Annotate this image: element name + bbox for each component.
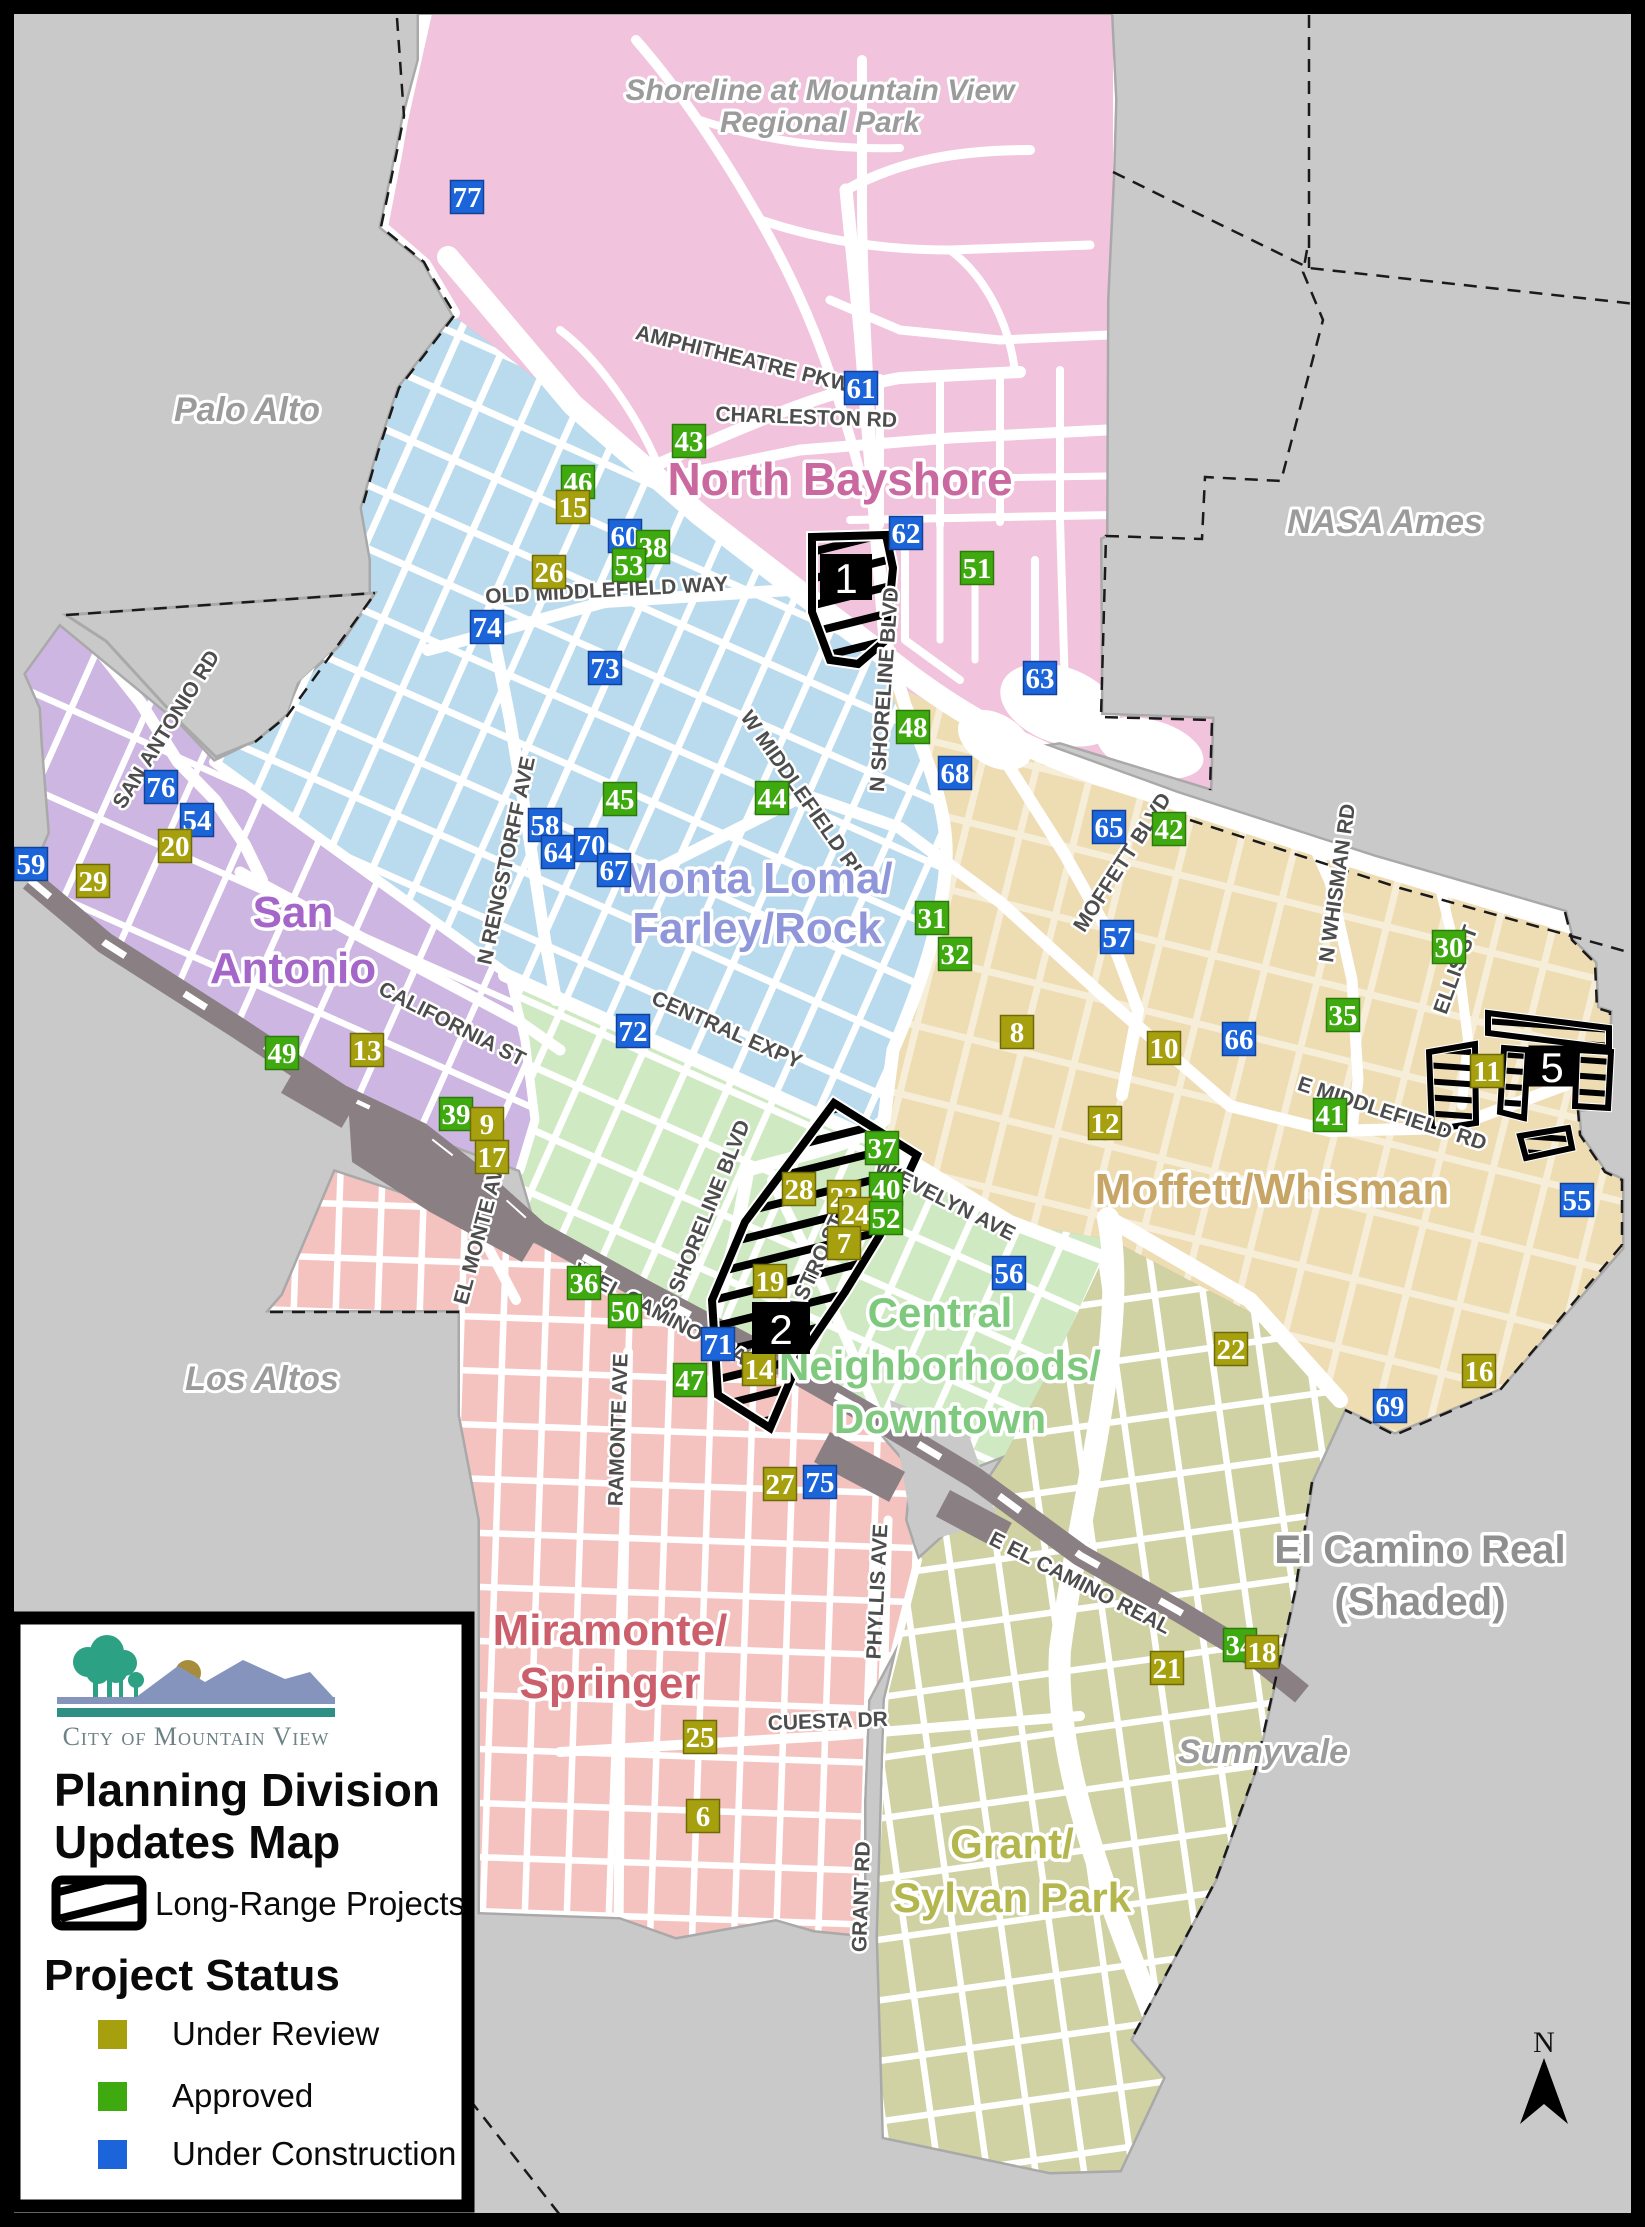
svg-text:Planning Division: Planning Division (54, 1764, 440, 1816)
svg-text:72: 72 (619, 1016, 648, 1048)
svg-text:6: 6 (696, 1801, 711, 1833)
svg-text:Approved: Approved (172, 2077, 313, 2114)
svg-text:9: 9 (480, 1109, 495, 1141)
svg-text:N: N (1533, 2026, 1555, 2059)
svg-text:Regional Park: Regional Park (720, 106, 921, 139)
svg-text:Farley/Rock: Farley/Rock (632, 904, 882, 953)
svg-text:5: 5 (1540, 1044, 1563, 1091)
svg-text:Springer: Springer (520, 1659, 701, 1708)
svg-text:57: 57 (1103, 922, 1132, 954)
svg-text:76: 76 (147, 772, 176, 804)
svg-text:49: 49 (268, 1038, 297, 1070)
svg-text:37: 37 (868, 1133, 897, 1165)
svg-text:Moffett/Whisman: Moffett/Whisman (1095, 1165, 1449, 1214)
svg-text:GRANT RD: GRANT RD (848, 1841, 875, 1953)
svg-text:30: 30 (1435, 932, 1464, 964)
svg-text:12: 12 (1091, 1108, 1120, 1140)
svg-text:15: 15 (559, 492, 588, 524)
svg-text:Neighborhoods/: Neighborhoods/ (779, 1342, 1101, 1389)
svg-text:63: 63 (1026, 663, 1055, 695)
svg-text:31: 31 (918, 903, 947, 935)
svg-text:75: 75 (806, 1467, 835, 1499)
svg-text:San: San (253, 888, 334, 937)
svg-text:10: 10 (1150, 1033, 1179, 1065)
svg-text:27: 27 (766, 1469, 795, 1501)
svg-text:North Bayshore: North Bayshore (667, 453, 1012, 505)
svg-text:Grant/: Grant/ (950, 1820, 1074, 1867)
svg-text:Long-Range Projects: Long-Range Projects (155, 1885, 465, 1922)
svg-text:Monta Loma/: Monta Loma/ (621, 854, 892, 903)
svg-text:Palo Alto: Palo Alto (174, 391, 320, 429)
svg-text:77: 77 (453, 182, 482, 214)
svg-text:43: 43 (675, 426, 704, 458)
svg-text:NASA Ames: NASA Ames (1287, 503, 1483, 541)
svg-text:59: 59 (17, 849, 46, 881)
svg-text:56: 56 (995, 1258, 1024, 1290)
svg-text:29: 29 (79, 866, 108, 898)
svg-text:13: 13 (353, 1035, 382, 1067)
svg-text:Downtown: Downtown (834, 1395, 1046, 1442)
svg-text:21: 21 (1153, 1653, 1182, 1685)
svg-text:62: 62 (892, 518, 921, 550)
svg-text:39: 39 (442, 1099, 471, 1131)
svg-text:Los Altos: Los Altos (185, 1360, 339, 1398)
svg-text:Under Review: Under Review (172, 2015, 379, 2052)
svg-text:41: 41 (1316, 1100, 1345, 1132)
svg-text:42: 42 (1155, 814, 1184, 846)
svg-text:45: 45 (606, 784, 635, 816)
svg-text:7: 7 (837, 1228, 852, 1260)
svg-text:2: 2 (769, 1306, 792, 1353)
svg-text:66: 66 (1225, 1024, 1254, 1056)
svg-text:(Shaded): (Shaded) (1334, 1580, 1505, 1624)
svg-text:8: 8 (1010, 1017, 1025, 1049)
svg-text:55: 55 (1563, 1185, 1592, 1217)
svg-text:Miramonte/: Miramonte/ (493, 1606, 728, 1655)
svg-text:71: 71 (704, 1329, 733, 1361)
svg-text:1: 1 (834, 555, 857, 602)
svg-text:44: 44 (758, 783, 787, 815)
svg-text:65: 65 (1095, 812, 1124, 844)
svg-text:52: 52 (872, 1203, 901, 1235)
svg-text:Project Status: Project Status (44, 1951, 340, 2000)
svg-text:50: 50 (611, 1296, 640, 1328)
svg-text:73: 73 (591, 653, 620, 685)
svg-text:Sunnyvale: Sunnyvale (1178, 1733, 1348, 1771)
svg-text:22: 22 (1217, 1334, 1246, 1366)
svg-text:Central: Central (868, 1289, 1013, 1336)
svg-text:Antonio: Antonio (210, 944, 376, 993)
svg-text:53: 53 (615, 550, 644, 582)
svg-text:Shoreline at Mountain View: Shoreline at Mountain View (626, 74, 1017, 107)
svg-text:48: 48 (899, 712, 928, 744)
svg-text:68: 68 (941, 758, 970, 790)
svg-text:11: 11 (1473, 1056, 1500, 1088)
svg-text:67: 67 (600, 855, 629, 887)
svg-text:Under Construction: Under Construction (172, 2135, 456, 2172)
svg-text:City of Mountain View: City of Mountain View (63, 1722, 330, 1751)
svg-text:61: 61 (847, 373, 876, 405)
svg-text:32: 32 (941, 939, 970, 971)
svg-text:CUESTA DR: CUESTA DR (767, 1708, 888, 1735)
svg-text:47: 47 (676, 1365, 705, 1397)
svg-text:El Camino Real: El Camino Real (1274, 1528, 1565, 1572)
svg-text:18: 18 (1248, 1637, 1277, 1669)
svg-text:26: 26 (535, 557, 564, 589)
svg-text:36: 36 (570, 1268, 599, 1300)
svg-text:28: 28 (785, 1174, 814, 1206)
svg-text:69: 69 (1376, 1391, 1405, 1423)
svg-text:14: 14 (745, 1354, 774, 1386)
svg-text:25: 25 (686, 1722, 715, 1754)
svg-text:Updates Map: Updates Map (54, 1816, 340, 1868)
svg-text:Sylvan Park: Sylvan Park (893, 1874, 1132, 1921)
svg-text:64: 64 (544, 837, 573, 869)
svg-text:35: 35 (1329, 1000, 1358, 1032)
svg-text:74: 74 (473, 612, 502, 644)
svg-text:51: 51 (963, 553, 992, 585)
svg-text:19: 19 (756, 1266, 785, 1298)
svg-text:17: 17 (478, 1142, 507, 1174)
svg-text:16: 16 (1465, 1356, 1494, 1388)
svg-text:20: 20 (161, 831, 190, 863)
